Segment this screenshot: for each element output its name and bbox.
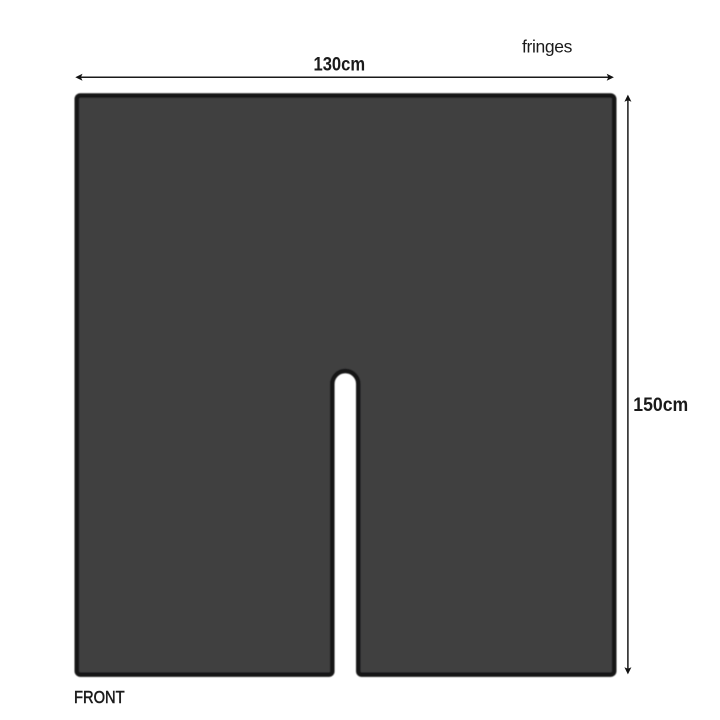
svg-text:FRONT: FRONT [74,688,125,707]
svg-text:130cm: 130cm [314,53,366,75]
svg-text:150cm: 150cm [633,393,688,415]
svg-text:fringes: fringes [522,37,573,57]
